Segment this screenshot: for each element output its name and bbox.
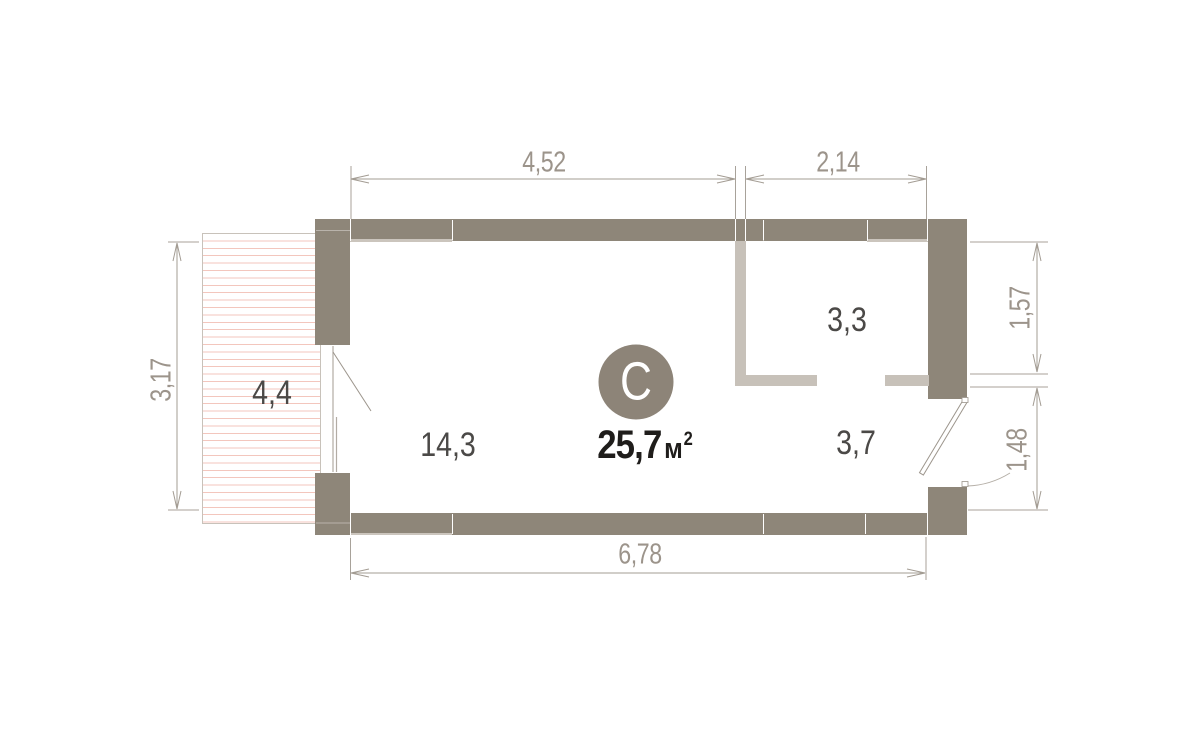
room-area-label-hall: 3,7 [836,426,876,460]
room-area-label-living: 14,3 [420,428,476,462]
dimension-label-bottom: 6,78 [618,541,662,570]
room-area-label-balcony: 4,4 [252,376,292,410]
unit-type-badge: С [599,345,674,420]
dimension-label-right-top: 1,57 [1007,286,1036,330]
total-area-unit-superscript: 2 [684,430,693,449]
total-area-label: 25,7м2 [597,425,693,465]
dimension-label-left: 3,17 [148,358,177,402]
total-area-unit: м [664,435,683,464]
dimension-label-top-right: 2,14 [816,149,860,178]
balcony-door-swing [333,346,371,472]
room-area-label-wet: 3,3 [827,303,867,337]
floor-plan: 4,52 2,14 3,17 1,57 1,48 6,78 4,4 14,3 3… [0,0,1200,736]
total-area-value: 25,7 [597,425,661,465]
unit-type-letter: С [620,354,652,410]
dimension-label-right-bottom: 1,48 [1004,428,1033,472]
dimension-label-top-left: 4,52 [522,149,566,178]
entry-door-swing [919,398,1010,487]
